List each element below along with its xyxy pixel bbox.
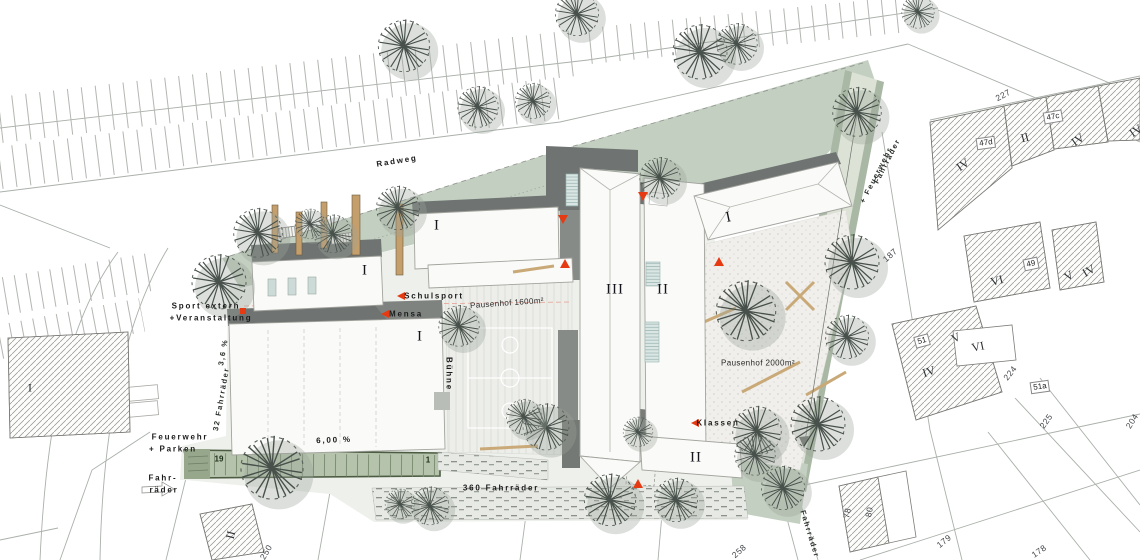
lane-end-block — [184, 449, 210, 479]
tree-icon — [458, 86, 505, 134]
entrance-marker-sq — [240, 308, 246, 314]
building-ii — [644, 178, 706, 458]
tree-icon — [515, 83, 556, 125]
annex-2 — [558, 330, 578, 420]
hatched-building-sw — [200, 504, 264, 560]
building-b-windows — [268, 277, 316, 296]
tree-icon — [902, 0, 940, 34]
tree-icon — [555, 0, 605, 43]
building-c-sporthalle — [229, 318, 445, 455]
entry-arrow — [142, 482, 174, 496]
site-plan: RadwegSport extern+VeranstaltungFeuerweh… — [0, 0, 1140, 560]
stage-block — [434, 392, 450, 410]
small-parking-west — [127, 385, 158, 418]
hatched-buildings-east — [839, 78, 1140, 552]
hatched-parcel-west-I — [8, 332, 130, 438]
tree-icon — [378, 19, 438, 80]
site-plan-drawing — [0, 0, 1140, 560]
